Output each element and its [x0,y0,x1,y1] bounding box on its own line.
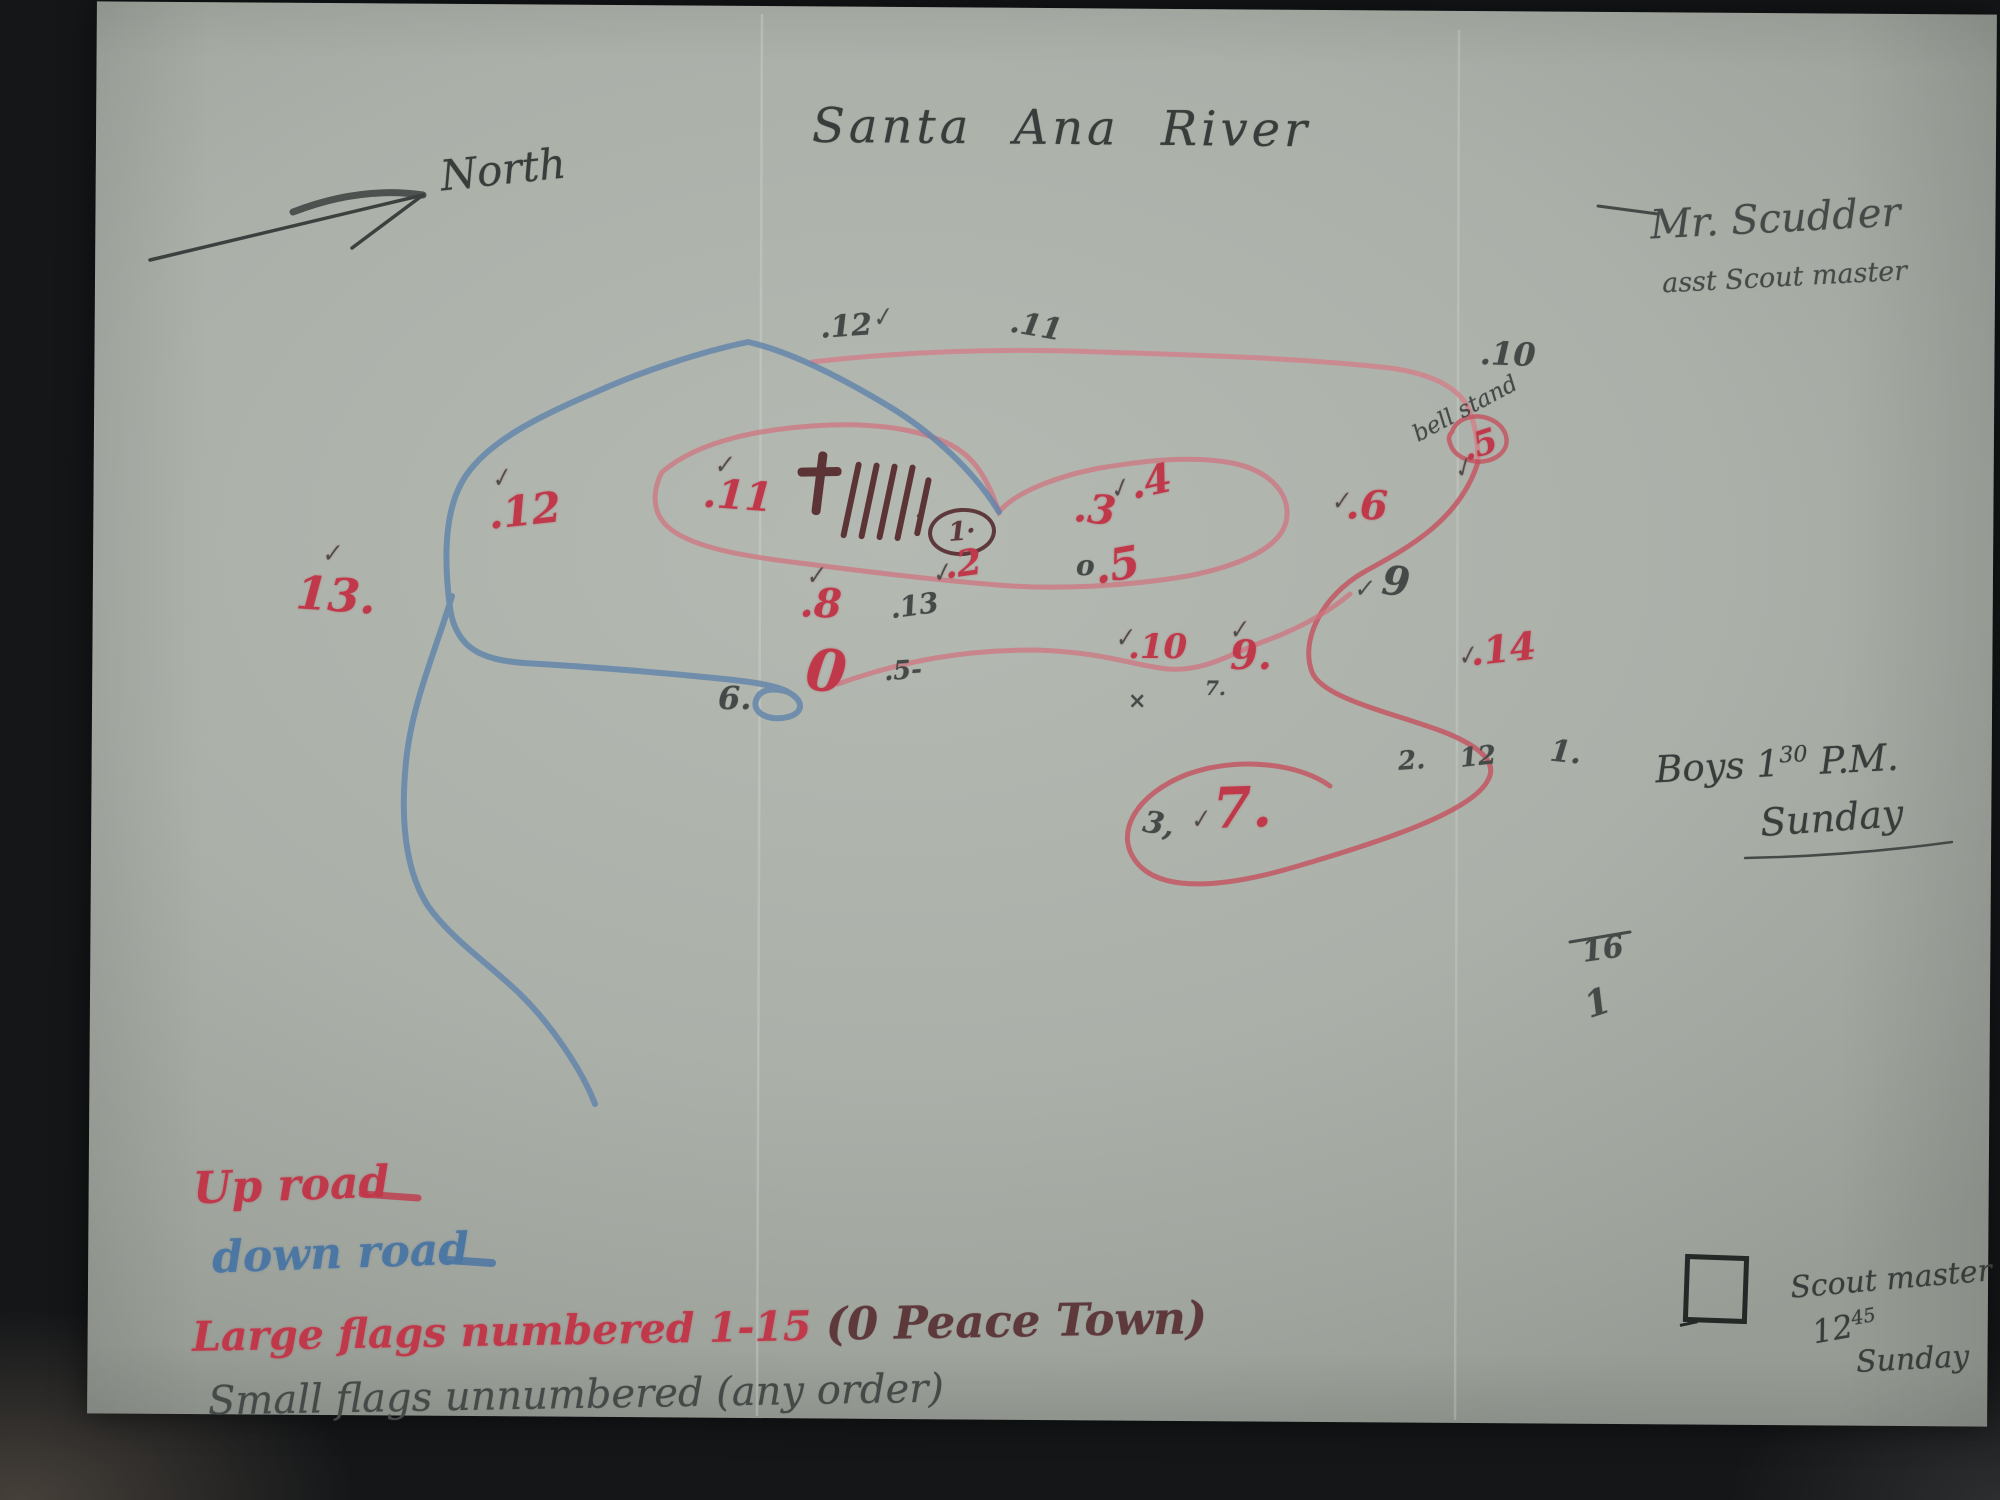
large-flag-14: .14✓ [1468,627,1538,672]
large-flag-10: .10✓ [1128,630,1187,664]
legend-large-flags: Large flags numbered 1-15 (0 Peace Town) [192,1291,1208,1362]
small-flag-label: 12 [1459,740,1498,774]
scoutmaster-label: Scout master [1789,1253,1993,1305]
map-title: Santa Ana River [812,98,1311,158]
scoutmaster-day: Sunday [1855,1339,1970,1380]
boys-note-suffix: P.M. [1818,736,1899,783]
check-mark: ✓ [1352,576,1375,602]
large-flag-label: .10 [1128,627,1187,667]
small-flag-label: .12 [819,307,874,346]
large-flag-7: 7.✓ [1212,779,1272,837]
scoutmaster-time-base: 12 [1809,1307,1856,1351]
small-flag-10: .10 [1479,337,1536,371]
boys-note-day: Sunday [1759,791,1905,845]
large-flag-2: .2✓ [942,544,984,585]
large-flag-13: 13.✓ [294,569,377,620]
signature-name: Mr. Scudder [1649,189,1902,248]
tally-cross-icon [811,451,828,516]
north-label: North [438,139,568,201]
small-flag-6: 6. [718,682,751,714]
check-mark: ✓ [869,303,895,332]
large-flag-label: .6 [1345,481,1388,529]
legend-up-road-label: Up road [192,1157,390,1215]
large-flag-label: .11 [701,470,774,522]
handwriting-layer: Santa Ana River North Mr. Scudder asst S… [0,0,2000,1500]
check-mark: ✓ [1328,488,1352,515]
scoutmaster-time-sup: 45 [1849,1303,1877,1330]
tally-stroke [858,462,880,540]
small-flag-label: o [1076,549,1095,582]
small-flag-11: .11 [1008,308,1065,347]
large-flag-label: 13. [294,565,378,624]
signature-role: asst Scout master [1661,256,1908,300]
large-flag-0: 0 [803,640,849,702]
tally-stroke [876,463,898,541]
small-flag-9: 9✓ [1380,561,1412,604]
boys-note-sup: 30 [1779,741,1809,768]
legend-large-flags-paren: (0 Peace Town) [825,1291,1207,1351]
legend-small-flags-label: Small flags unnumbered (any order) [208,1366,945,1425]
small-flag-label: .5- [883,655,923,688]
small-flag-1: 1. [1549,736,1583,769]
small-flag-label: 2. [1397,745,1426,777]
tally-marks [793,444,949,562]
large-flag-6: .6✓ [1345,485,1388,526]
small-flag-label: 7. [1205,676,1226,700]
small-flag-label: 1. [1548,733,1583,771]
small-flag-label: 6. [718,679,751,717]
small-flag-label: × [1128,688,1146,714]
small-flag-label: .10 [1479,334,1536,374]
small-flag-1: 1 [1580,982,1615,1024]
large-flag-9: 9.✓ [1230,636,1272,676]
tally-cross-icon [797,467,841,477]
large-flag-11: .11✓ [702,474,774,519]
small-flag-7: 7. [1205,678,1226,698]
small-flag-label: 1 [1579,979,1616,1027]
large-flag-5: .5 [1091,540,1144,591]
large-flag-label: 0 [803,635,850,707]
check-mark: ✓ [803,562,827,589]
check-mark: ✓ [712,452,735,479]
scoutmaster-square-symbol [1683,1254,1749,1324]
large-flag-8: .8✓ [799,583,842,624]
large-flag-12: .12✓ [486,486,563,535]
large-flag-5: .5✓ [1458,423,1502,466]
tally-stroke [894,464,916,542]
small-flag-3: 3, [1141,808,1177,843]
small-flag-label: 9 [1380,557,1413,607]
small-flag-label: 3, [1140,805,1177,845]
legend-down-road-label: down road [211,1224,470,1284]
photo-of-hand-drawn-map: Santa Ana River North Mr. Scudder asst S… [0,0,2000,1500]
small-flag-5: .5- [883,657,923,686]
small-flag-label: .13 [888,586,941,625]
small-flag-: × [1128,690,1146,712]
tally-stroke [840,461,862,539]
small-flag-label: 16 [1580,929,1626,969]
boys-note-prefix: Boys 1 [1654,742,1781,791]
small-flag-12: 12 [1459,742,1498,772]
small-flag-label: .11 [1007,305,1064,349]
check-mark: ✓ [1226,616,1251,644]
large-flag-label: .5 [1090,536,1144,594]
large-flag-4: .4✓ [1126,458,1175,506]
boys-note: Boys 130 P.M. [1654,736,1899,792]
tally-stroke [914,477,932,537]
small-flag-13: .13 [888,589,940,624]
small-flag-12: .12✓ [819,310,873,344]
small-flag-o: o [1076,552,1095,580]
small-flag-16: 16 [1580,932,1626,968]
check-mark: ✓ [319,540,342,567]
legend-large-flags-label: Large flags numbered 1-15 [192,1302,812,1361]
large-flag-label: .4 [1125,454,1176,509]
small-flag-2: 2. [1397,747,1426,775]
large-flag-label: 7. [1212,774,1273,842]
check-mark: ✓ [1187,805,1212,833]
